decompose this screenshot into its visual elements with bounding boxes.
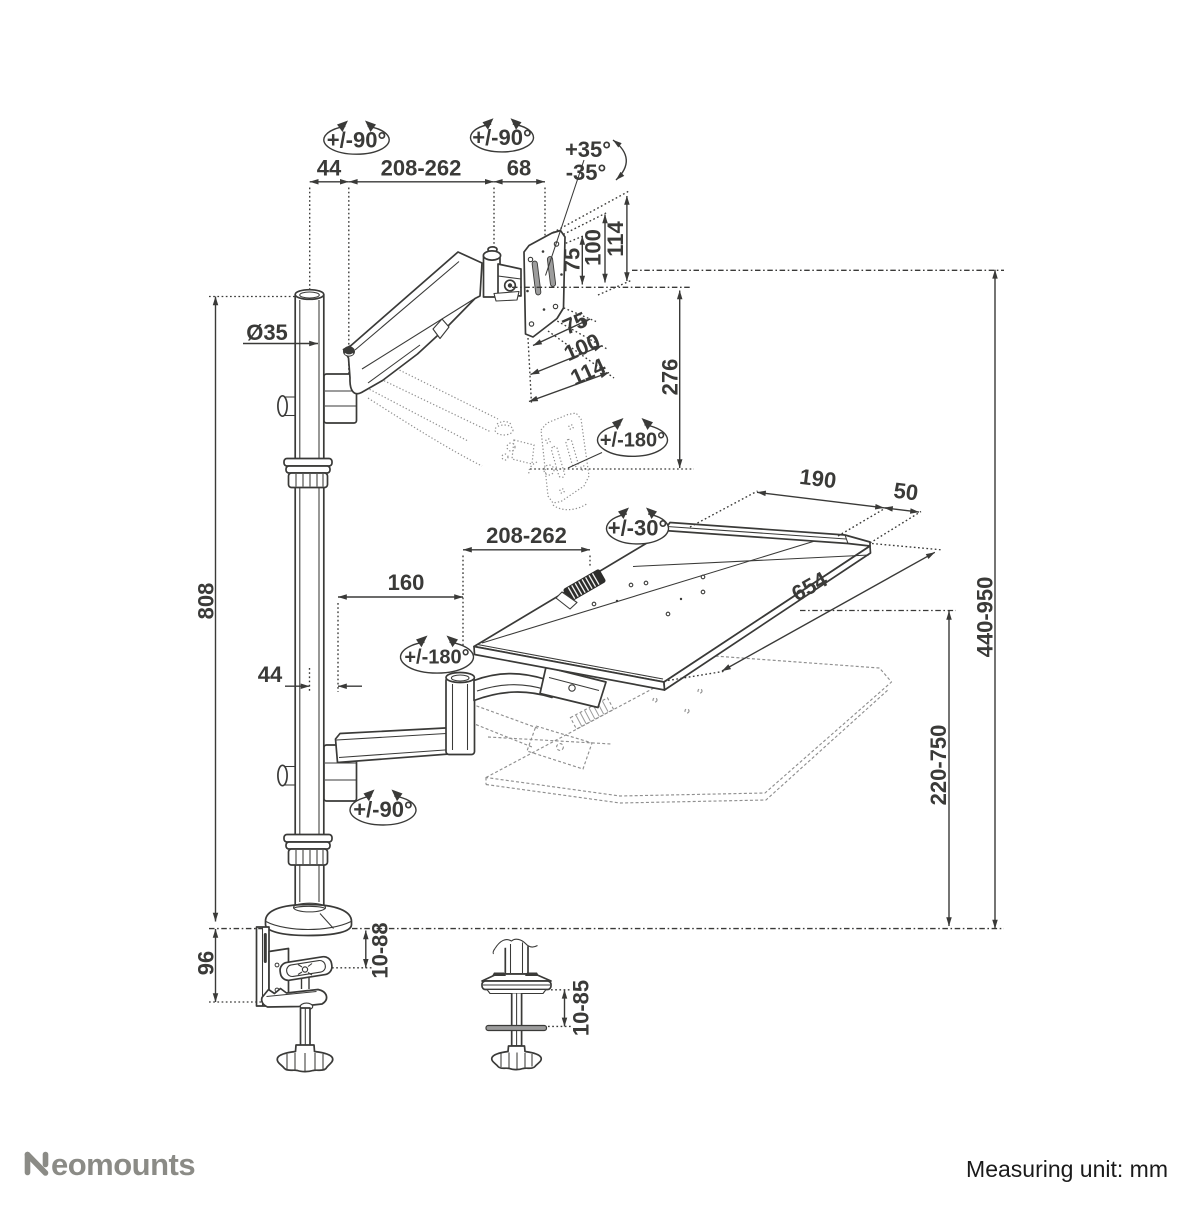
svg-text:44: 44 xyxy=(317,156,342,181)
svg-text:+/-180°: +/-180° xyxy=(600,430,665,452)
svg-text:44: 44 xyxy=(258,662,283,687)
svg-text:440-950: 440-950 xyxy=(973,577,998,658)
svg-text:+35°: +35° xyxy=(565,137,611,162)
svg-text:+/-180°: +/-180° xyxy=(404,647,469,669)
svg-text:+/-90°: +/-90° xyxy=(327,127,387,152)
svg-text:208-262: 208-262 xyxy=(381,156,462,181)
svg-text:114: 114 xyxy=(603,220,628,256)
svg-text:50: 50 xyxy=(892,478,919,506)
svg-text:+/-30°: +/-30° xyxy=(608,516,668,541)
svg-text:808: 808 xyxy=(194,583,219,620)
svg-text:68: 68 xyxy=(507,156,531,181)
svg-text:Ø35: Ø35 xyxy=(246,320,288,345)
svg-text:96: 96 xyxy=(194,951,219,975)
svg-text:10-85: 10-85 xyxy=(569,980,594,1036)
svg-text:10-88: 10-88 xyxy=(368,922,393,978)
svg-text:220-750: 220-750 xyxy=(926,725,951,806)
svg-text:eomounts: eomounts xyxy=(51,1147,195,1182)
svg-text:Measuring unit: mm: Measuring unit: mm xyxy=(966,1156,1168,1182)
svg-text:100: 100 xyxy=(581,229,606,266)
svg-text:160: 160 xyxy=(388,570,425,595)
svg-text:+/-90°: +/-90° xyxy=(472,125,532,150)
svg-text:190: 190 xyxy=(798,464,837,493)
svg-text:208-262: 208-262 xyxy=(486,523,567,548)
svg-text:276: 276 xyxy=(658,359,683,396)
svg-text:+/-90°: +/-90° xyxy=(353,797,413,822)
svg-text:-35°: -35° xyxy=(566,160,607,185)
